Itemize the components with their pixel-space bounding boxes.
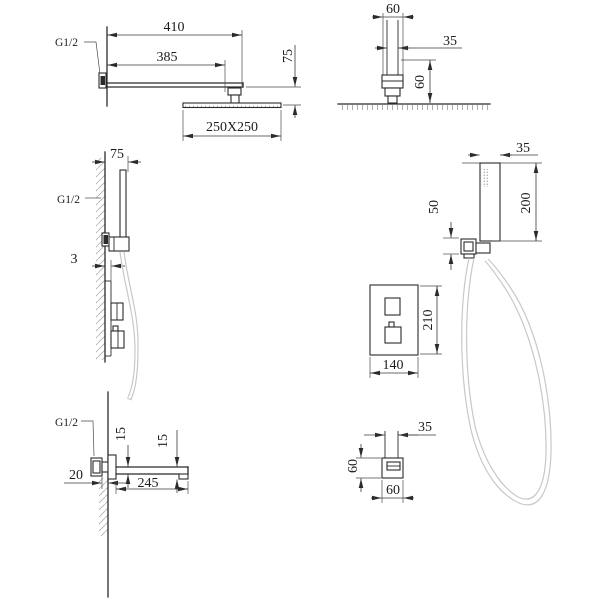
view-hand-shower-side: 75 G1/2 3 [57,147,141,400]
spout-outlet [179,474,188,479]
mixer-diverter-tab-side [113,326,118,331]
dim-overall-width-label: 410 [164,20,185,35]
head-connector-upper [228,88,241,95]
dim-bar-height-rear-label: 15 [114,427,129,441]
shower-hose-loop-inner [467,258,546,499]
leader-line [84,42,100,74]
view-overhead-shower-side: 60 35 60 [338,2,490,110]
dim-inlet-depth-label: 20 [69,468,83,483]
hand-shower-holder-side [109,237,129,251]
mixer-handle-lower [385,327,401,343]
holder-step [464,254,474,258]
view-overhead-shower-front: G1/2 410 385 75 250X250 [55,20,301,141]
shower-hose-side-strand [124,252,138,399]
dim-plate-offset-label: 3 [71,252,78,267]
dim-head-width-label: 35 [516,141,530,156]
dim-pipe-width-label: 35 [418,420,432,435]
dim-body-length-label: 200 [519,193,534,214]
mixer-trim-plate [370,285,418,355]
wall-elbow-fitting-core [101,76,106,85]
inlet-fitting-inner [93,461,100,473]
dim-body-width-label: 60 [386,483,400,498]
spout-base-plate [108,455,116,479]
view-spout-front: 35 60 60 [346,420,436,503]
dim-wall-offset-label: 75 [110,147,124,162]
shower-head-edge-hatch [338,105,490,110]
dim-bracket-height-label: 60 [413,75,428,89]
shower-system-technical-drawing: G1/2 410 385 75 250X250 [0,0,600,600]
shower-head-spray-face [184,104,280,107]
leader-line [81,421,94,456]
drawing-canvas: G1/2 410 385 75 250X250 [0,0,600,600]
holder-knob-inner [464,242,473,251]
head-connector-nub [388,96,397,103]
dim-arm-length-label: 385 [157,50,178,65]
thread-label: G1/2 [55,37,78,49]
dim-body-height-label: 60 [346,459,361,473]
thread-label: G1/2 [55,417,78,429]
dim-plate-width-label: 140 [383,358,404,373]
wall-outlet-core [104,235,109,244]
holder-clamp [476,243,490,253]
mixer-handle-upper [385,298,400,315]
wall-hatching [96,158,105,360]
dim-bar-height-front-label: 15 [156,434,171,448]
mixer-handle-lower-side [111,331,124,348]
wall-hatching [99,478,108,536]
shower-hose-loop-outer [462,258,551,505]
head-mount-bracket [382,75,403,88]
dim-holder-height-label: 50 [427,200,442,214]
inlet-neck [102,462,108,472]
thread-label: G1/2 [57,194,80,206]
head-connector [385,88,400,96]
hand-shower-spray-face [482,169,490,187]
mixer-diverter-tab [389,322,394,327]
dim-bracket-width-label: 60 [386,2,400,17]
dim-head-size-label: 250X250 [206,120,258,135]
dim-spout-length-label: 245 [138,476,159,491]
hand-shower-body-side [120,170,126,238]
view-spout-side: G1/2 20 15 15 245 [55,392,188,597]
head-connector-lower [231,95,239,103]
dim-plate-height-label: 210 [421,310,436,331]
view-hand-shower-front: 35 200 50 [427,141,551,505]
dim-head-drop-label: 75 [281,49,296,63]
view-mixer-front: 210 140 [370,285,442,378]
dim-pipe-width-label: 35 [443,34,457,49]
